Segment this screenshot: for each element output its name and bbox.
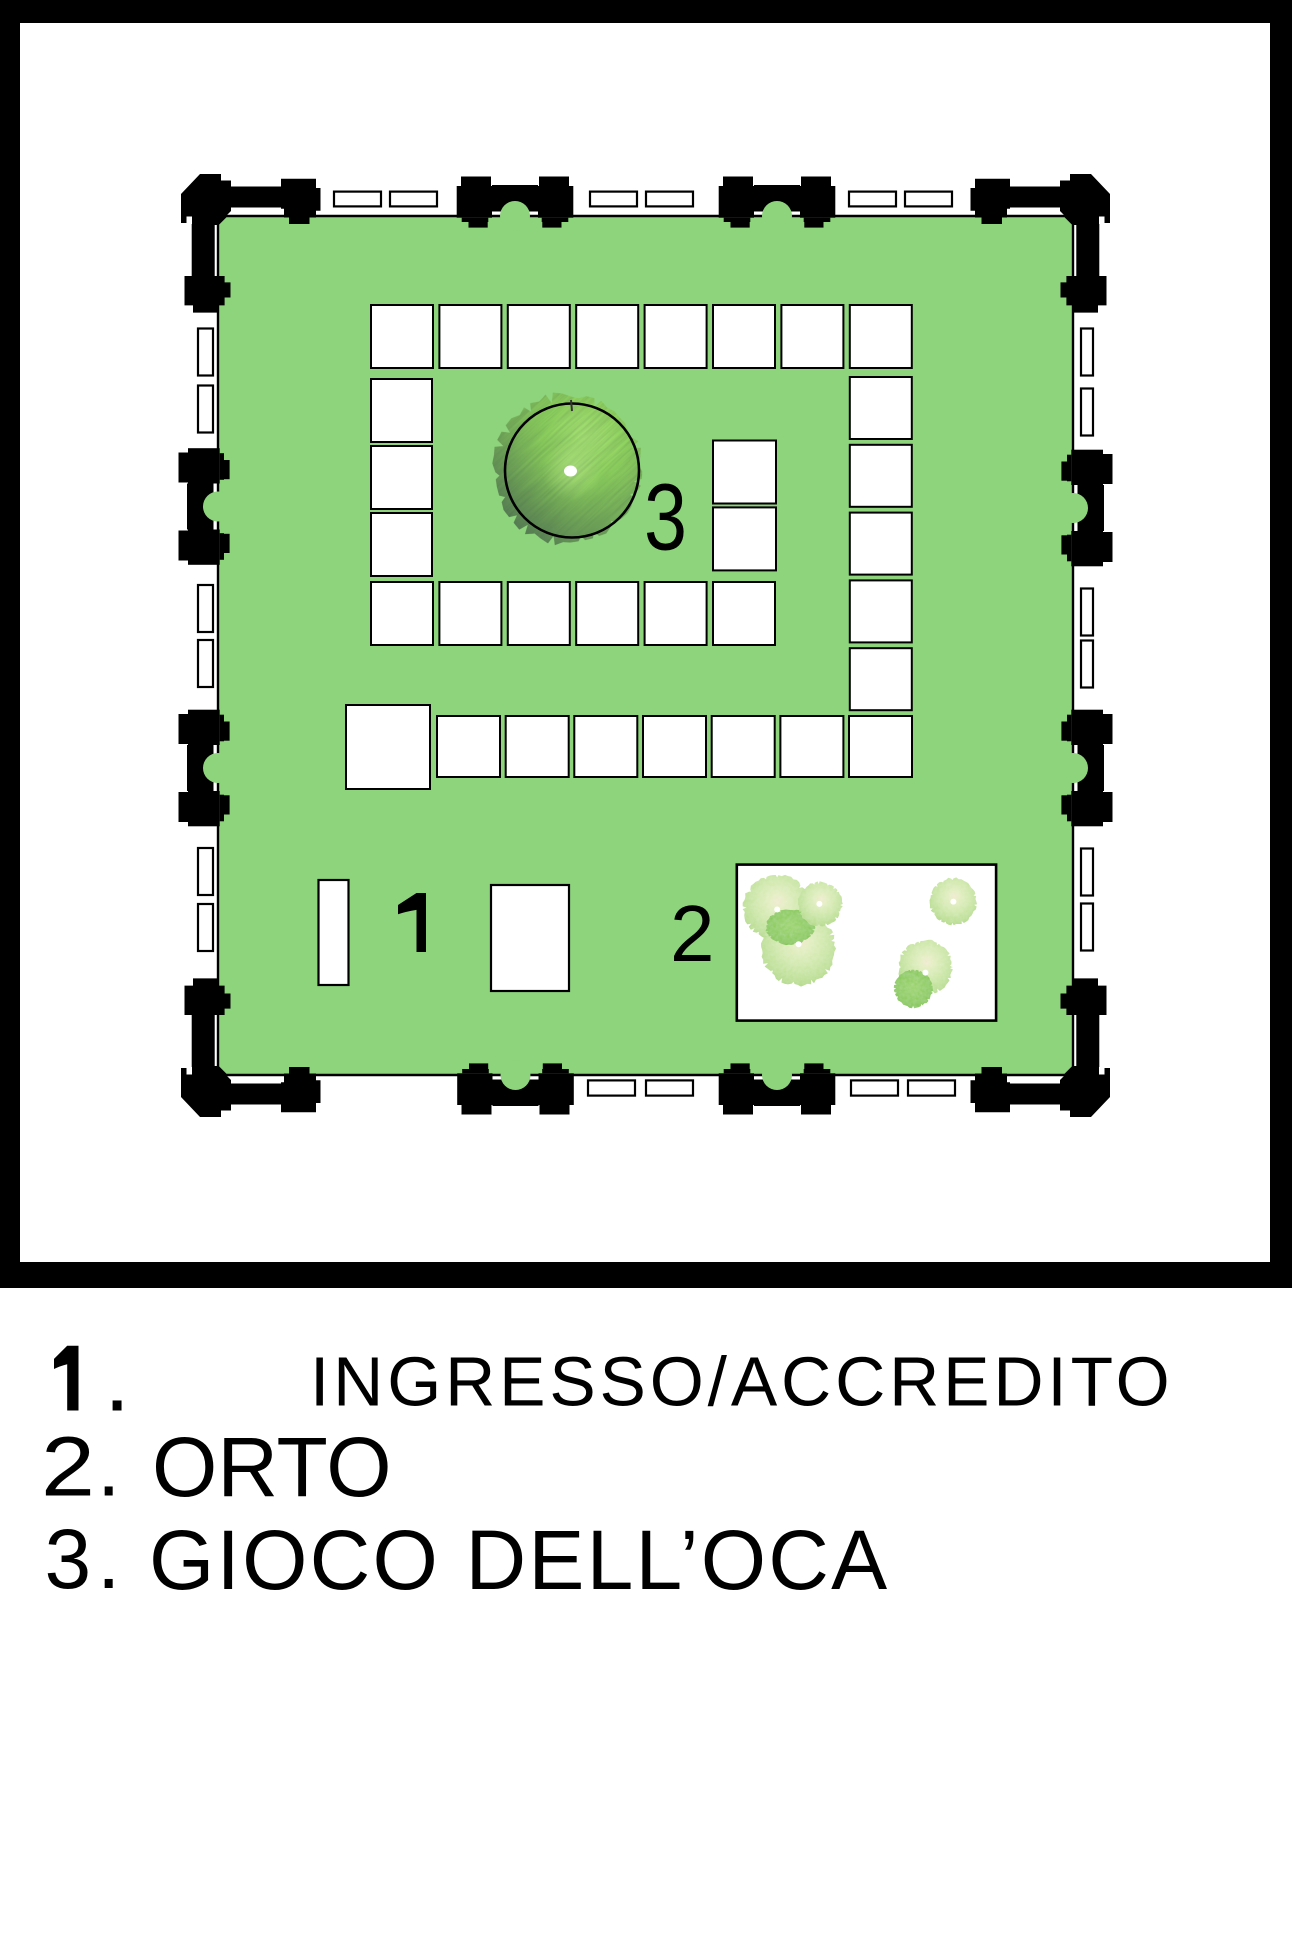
svg-text:GIOCO DELL’OCA: GIOCO DELL’OCA xyxy=(149,1513,889,1607)
svg-text:3: 3 xyxy=(644,465,687,571)
svg-text:3: 3 xyxy=(45,1512,92,1606)
svg-text:.: . xyxy=(97,1420,120,1514)
svg-text:.: . xyxy=(104,1326,130,1431)
svg-text:ORTO: ORTO xyxy=(152,1420,392,1514)
svg-text:2: 2 xyxy=(670,889,715,978)
svg-text:.: . xyxy=(97,1512,120,1606)
svg-text:2: 2 xyxy=(41,1420,95,1514)
svg-text:INGRESSO/ACCREDITO: INGRESSO/ACCREDITO xyxy=(310,1343,1174,1421)
